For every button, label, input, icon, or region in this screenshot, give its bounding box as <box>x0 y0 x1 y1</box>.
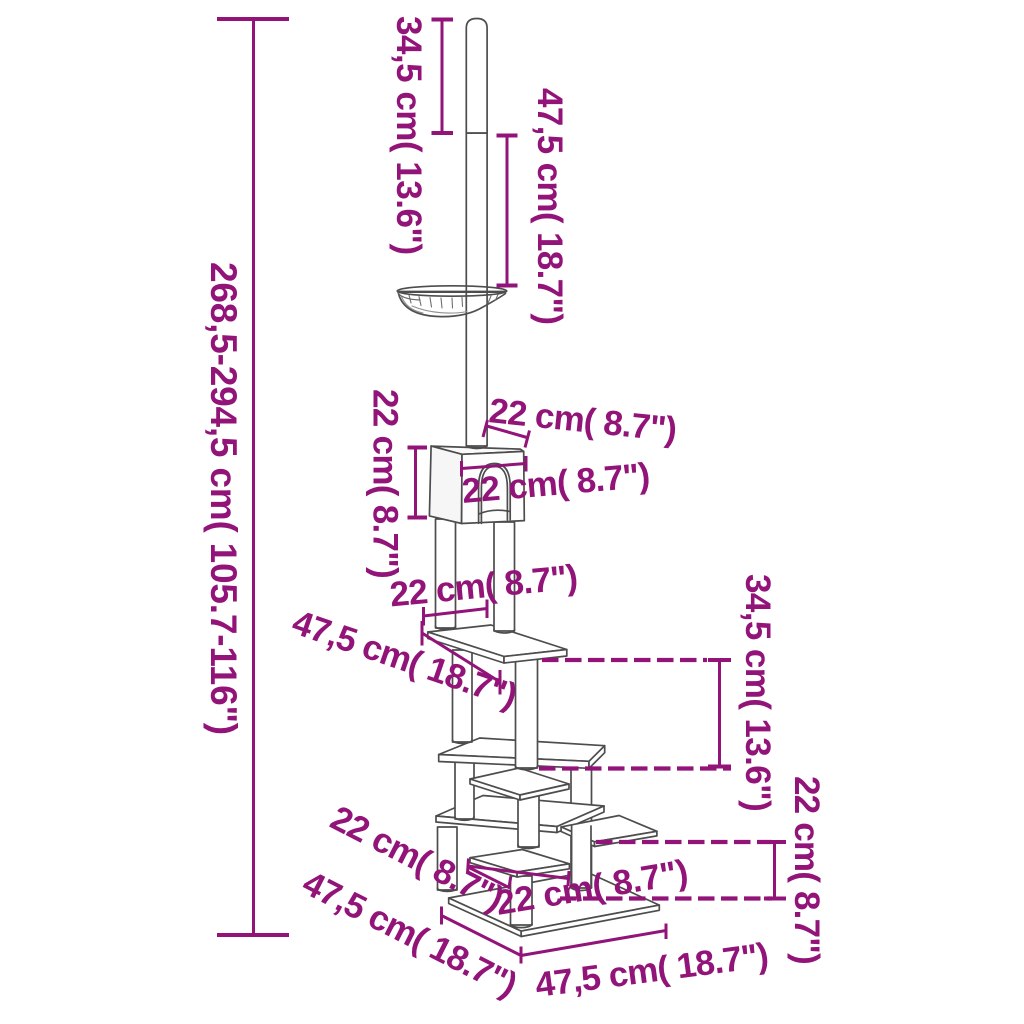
svg-text:268,5-294,5 cm( 105.7-116"): 268,5-294,5 cm( 105.7-116") <box>203 262 244 735</box>
svg-text:47,5 cm( 18.7"): 47,5 cm( 18.7") <box>287 603 521 716</box>
svg-text:22 cm( 8.7"): 22 cm( 8.7") <box>366 389 405 578</box>
svg-text:47,5 cm( 18.7"): 47,5 cm( 18.7") <box>530 88 569 324</box>
svg-text:22 cm( 8.7"): 22 cm( 8.7") <box>487 391 678 449</box>
svg-text:22 cm( 8.7"): 22 cm( 8.7") <box>388 558 579 615</box>
svg-text:34,5 cm( 13.6"): 34,5 cm( 13.6") <box>738 574 777 811</box>
svg-text:34,5 cm( 13.6"): 34,5 cm( 13.6") <box>389 16 428 255</box>
svg-text:22 cm( 8.7"): 22 cm( 8.7") <box>787 776 826 964</box>
